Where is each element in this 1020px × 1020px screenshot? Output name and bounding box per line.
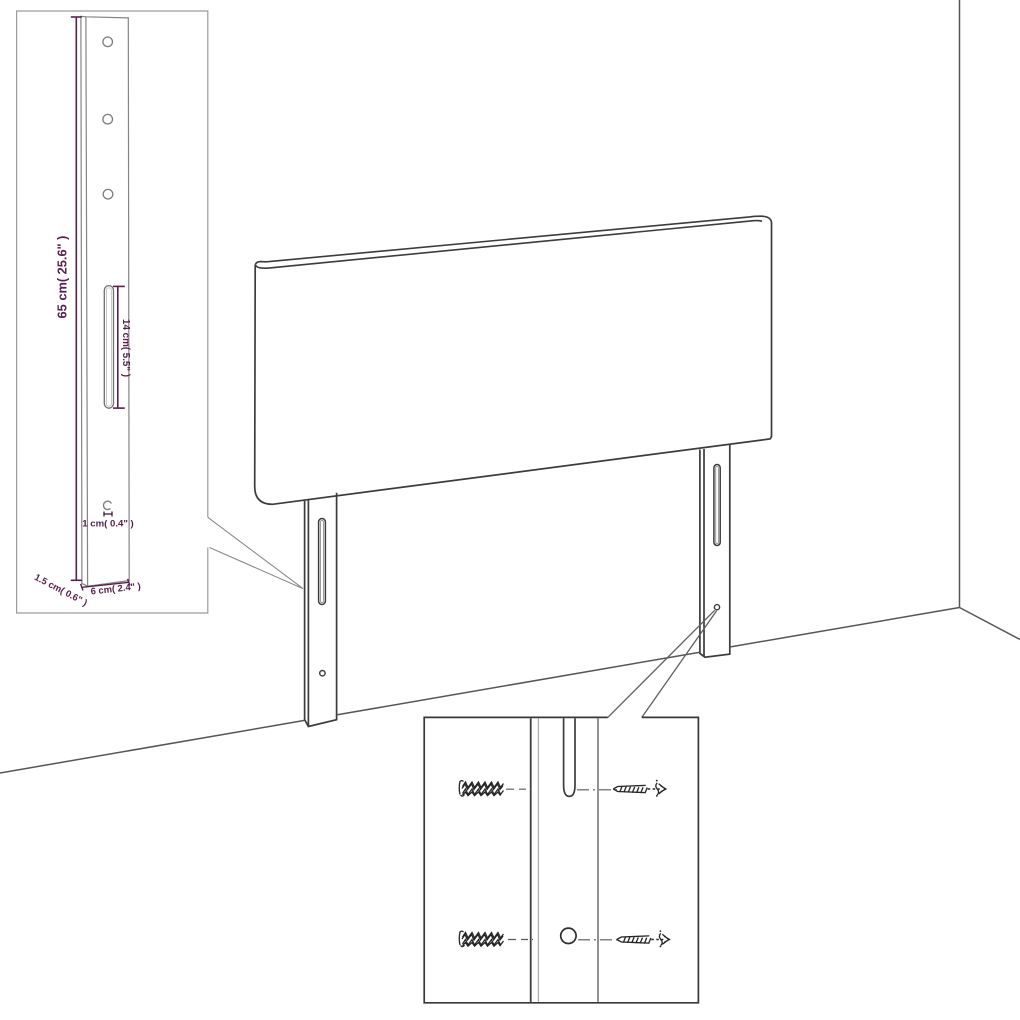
svg-text:1 cm( 0.4" ): 1 cm( 0.4" ) <box>82 519 133 530</box>
svg-text:14 cm( 5.5" ): 14 cm( 5.5" ) <box>120 319 131 377</box>
svg-text:65 cm( 25.6" ): 65 cm( 25.6" ) <box>55 236 70 319</box>
